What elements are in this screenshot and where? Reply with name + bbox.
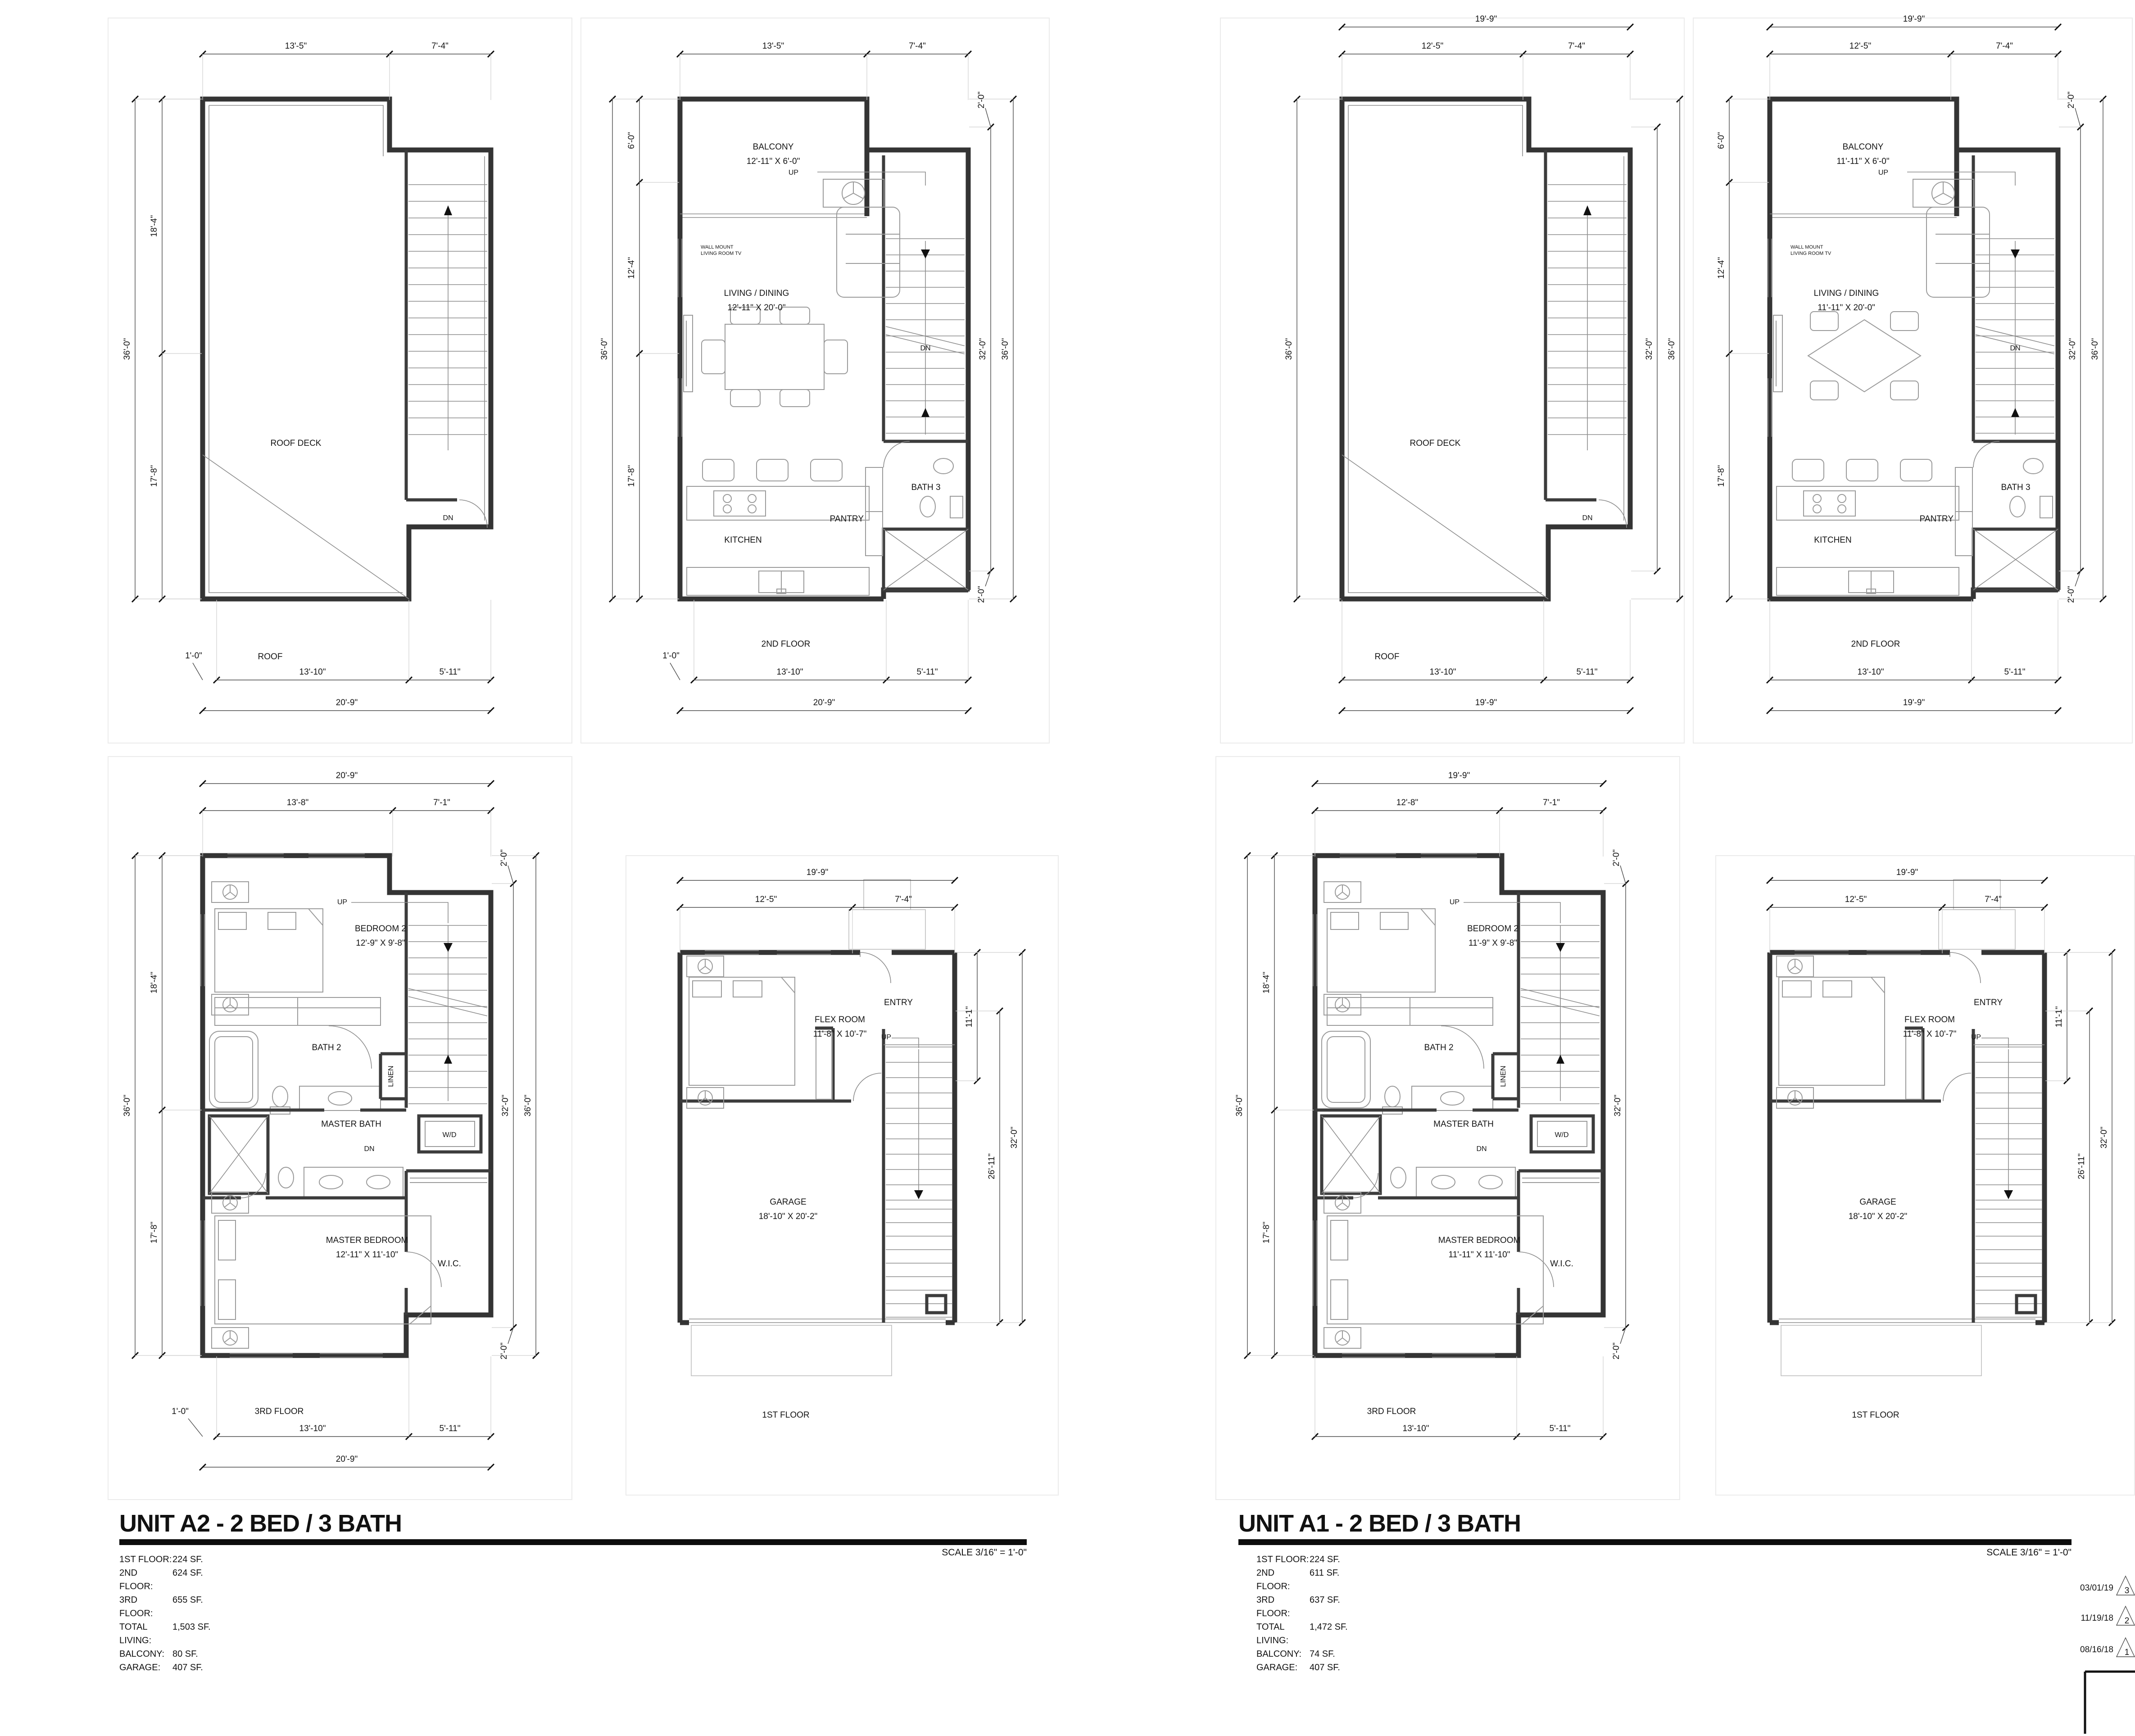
- dim-label: 17'-8": [1262, 1222, 1271, 1243]
- area-label: 1ST FLOOR:: [119, 1553, 172, 1566]
- area-label: TOTAL LIVING:: [1256, 1620, 1310, 1647]
- stair-direction-label: DN: [1582, 514, 1592, 522]
- floor-plan-3rd-a1: [1313, 854, 1603, 1357]
- room-dims-label: 12'-11" X 11'-10": [336, 1250, 398, 1260]
- unit-a1-title-block: UNIT A1 - 2 BED / 3 BATH: [1238, 1509, 1521, 1537]
- dim-label: 12'-8": [1396, 798, 1418, 807]
- dim-label: 7'-4": [1996, 41, 2013, 51]
- dim-label: 20'-9": [813, 698, 835, 707]
- dim-label: 12'-5": [755, 895, 777, 904]
- dim-label: 13'-10": [299, 1424, 326, 1433]
- area-row: 1ST FLOOR:224 SF.: [1256, 1553, 1348, 1566]
- floor-label: 3RD FLOOR: [255, 1407, 304, 1416]
- room-label: BATH 2: [1424, 1043, 1453, 1052]
- dim-label: 36'-0": [122, 338, 132, 360]
- dim-label: 19'-9": [1475, 698, 1497, 707]
- floor-label: 1ST FLOOR: [762, 1410, 809, 1420]
- title-block-border: [2085, 1672, 2135, 1734]
- room-label: LIVING / DINING: [724, 289, 789, 298]
- room-dims-label: 11'-9" X 9'-8": [1469, 938, 1517, 948]
- area-value: 407 SF.: [172, 1661, 211, 1674]
- room-dims-label: 12'-9" X 9'-8": [356, 938, 405, 948]
- dim-label: 18'-4": [150, 215, 159, 237]
- revision-block: 03/01/19 3 11/19/18 2 08/16/18 1: [2080, 1576, 2135, 1734]
- area-value: 407 SF.: [1310, 1661, 1348, 1674]
- area-row: GARAGE:407 SF.: [1256, 1661, 1348, 1674]
- room-label: KITCHEN: [1814, 535, 1851, 545]
- room-label: BALCONY: [1843, 142, 1884, 152]
- room-label: PANTRY: [1920, 514, 1954, 524]
- title-underline: [119, 1539, 1027, 1545]
- room-label: BEDROOM 2: [1467, 924, 1519, 934]
- dim-label: 5'-11": [1577, 667, 1598, 677]
- area-value: 80 SF.: [172, 1647, 211, 1661]
- area-row: 2ND FLOOR:611 SF.: [1256, 1566, 1348, 1593]
- room-label: ENTRY: [884, 998, 913, 1007]
- revision-number: 1: [2125, 1648, 2130, 1657]
- unit-title: UNIT A2 - 2 BED / 3 BATH: [119, 1509, 402, 1537]
- floor-label: ROOF: [258, 652, 283, 662]
- panel-a1-third: 19'-9" 12'-8" 7'-1" 36'-0" 18'-4" 17'-8"…: [1235, 771, 1623, 1433]
- tv-note: LIVING ROOM TV: [1790, 251, 1831, 256]
- room-label: W/D: [1555, 1131, 1568, 1139]
- room-dims-label: 11'-8" X 10'-7": [813, 1029, 867, 1039]
- dim-label: 1'-0": [185, 651, 202, 661]
- dim-label: 12'-4": [1717, 257, 1726, 279]
- dim-label: 1'-0": [172, 1407, 189, 1416]
- dim-label: 7'-4": [431, 41, 449, 51]
- dim-label: 2'-0": [977, 91, 986, 109]
- room-label: PANTRY: [830, 514, 864, 524]
- stair-direction-label: UP: [1971, 1033, 1981, 1041]
- room-dims-label: 11'-11" X 6'-0": [1836, 157, 1889, 166]
- panel-a2-second: 13'-5" 7'-4" 36'-0" 6'-0" 12'-4" 17'-8" …: [600, 41, 1010, 707]
- dim-label: 20'-9": [336, 698, 358, 707]
- dim-label: 13'-5": [285, 41, 307, 51]
- dim-label: 1'-0": [662, 651, 680, 661]
- room-label: LINEN: [1500, 1065, 1507, 1087]
- dim-label: 2'-0": [977, 586, 986, 603]
- dim-label: 5'-11": [2004, 667, 2026, 677]
- dining-set-a1: [1808, 312, 1921, 400]
- dim-label: 2'-0": [1612, 1342, 1621, 1360]
- panel-a2-roof: 13'-5" 7'-4" 36'-0" 18'-4" 17'-8" ROOF D…: [122, 41, 461, 707]
- dim-label: 32'-0": [978, 338, 988, 360]
- area-label: TOTAL LIVING:: [119, 1620, 172, 1647]
- area-row: TOTAL LIVING:1,503 SF.: [119, 1620, 211, 1647]
- area-label: 3RD FLOOR:: [1256, 1593, 1310, 1620]
- stair-direction-label: DN: [2010, 344, 2020, 352]
- area-row: GARAGE:407 SF.: [119, 1661, 211, 1674]
- revision-number: 2: [2125, 1616, 2130, 1626]
- room-label: BALCONY: [753, 142, 794, 152]
- dim-label: 19'-9": [1903, 14, 1925, 24]
- dim-label: 7'-1": [433, 798, 450, 807]
- unit-a2-title-block: UNIT A2 - 2 BED / 3 BATH: [119, 1509, 402, 1537]
- area-value: 74 SF.: [1310, 1647, 1348, 1661]
- title-underline: [1238, 1539, 2072, 1545]
- dim-label: 26'-11": [2077, 1153, 2086, 1179]
- area-value: 611 SF.: [1310, 1566, 1348, 1593]
- dim-label: 13'-10": [777, 667, 803, 677]
- room-label: GARAGE: [1859, 1197, 1896, 1207]
- dim-label: 12'-5": [1845, 895, 1867, 904]
- room-label: MASTER BEDROOM: [1438, 1236, 1521, 1245]
- area-value: 224 SF.: [172, 1553, 211, 1566]
- dim-label: 19'-9": [807, 868, 828, 877]
- dim-label: 5'-11": [917, 667, 938, 677]
- floor-plan-3rd-a2: [201, 854, 491, 1357]
- tv-note: LIVING ROOM TV: [701, 251, 742, 256]
- dim-label: 2'-0": [1612, 849, 1621, 866]
- area-label: 3RD FLOOR:: [119, 1593, 172, 1620]
- stair-direction-label: DN: [920, 344, 930, 352]
- dim-label: 12'-5": [1422, 41, 1443, 51]
- area-label: 1ST FLOOR:: [1256, 1553, 1310, 1566]
- area-label: 2ND FLOOR:: [1256, 1566, 1310, 1593]
- dim-label: 36'-0": [600, 338, 609, 360]
- area-row: BALCONY:80 SF.: [119, 1647, 211, 1661]
- room-label: FLEX ROOM: [1904, 1015, 1955, 1024]
- dim-label: 36'-0": [1667, 338, 1677, 360]
- room-dims-label: 12'-11" X 6'-0": [747, 157, 800, 166]
- area-value: 655 SF.: [172, 1593, 211, 1620]
- dim-label: 2'-0": [499, 1342, 509, 1360]
- room-label: BATH 3: [911, 483, 940, 492]
- dim-label: 2'-0": [2067, 91, 2076, 109]
- dim-label: 5'-11": [440, 1424, 461, 1433]
- floor-label: ROOF: [1375, 652, 1400, 662]
- dim-label: 19'-9": [1448, 771, 1470, 780]
- dim-label: 13'-10": [1430, 667, 1456, 677]
- dim-label: 20'-9": [336, 771, 358, 780]
- area-label: GARAGE:: [119, 1661, 172, 1674]
- dim-label: 5'-11": [1550, 1424, 1571, 1433]
- floor-label: 1ST FLOOR: [1852, 1410, 1899, 1420]
- room-dims-label: 11'-11" X 11'-10": [1449, 1250, 1510, 1260]
- dim-label: 7'-4": [1568, 41, 1585, 51]
- floor-label: 3RD FLOOR: [1367, 1407, 1416, 1416]
- dim-label: 19'-9": [1475, 14, 1497, 24]
- dim-label: 19'-9": [1896, 868, 1918, 877]
- stair-direction-label: UP: [337, 898, 347, 906]
- dim-label: 13'-8": [287, 798, 308, 807]
- room-label: MASTER BATH: [1433, 1120, 1494, 1129]
- tv-note: WALL MOUNT: [1790, 245, 1823, 250]
- stair-direction-label: UP: [1878, 169, 1888, 177]
- room-label: W.I.C.: [1550, 1259, 1573, 1269]
- area-row: 2ND FLOOR:624 SF.: [119, 1566, 211, 1593]
- room-label: GARAGE: [770, 1197, 806, 1207]
- dim-label: 11'-1": [2054, 1006, 2064, 1028]
- room-label: FLEX ROOM: [815, 1015, 865, 1024]
- area-label: 2ND FLOOR:: [119, 1566, 172, 1593]
- dining-set-a2: [702, 307, 848, 407]
- dim-label: 5'-11": [440, 667, 461, 677]
- dim-label: 13'-10": [1858, 667, 1884, 677]
- dim-label: 17'-8": [1717, 465, 1726, 487]
- room-dims-label: 12'-11" X 20'-0": [727, 303, 785, 313]
- room-dims-label: 18'-10" X 20'-2": [1849, 1212, 1908, 1221]
- area-value: 1,503 SF.: [172, 1620, 211, 1647]
- dim-label: 26'-11": [987, 1153, 997, 1179]
- dim-label: 36'-0": [1235, 1095, 1244, 1116]
- stair-direction-label: DN: [364, 1145, 374, 1153]
- room-dims-label: 11'-8" X 10'-7": [1903, 1029, 1957, 1039]
- dim-label: 12'-5": [1849, 41, 1871, 51]
- dim-label: 17'-8": [150, 465, 159, 487]
- room-label: LIVING / DINING: [1814, 289, 1879, 298]
- dim-label: 32'-0": [1645, 338, 1654, 360]
- room-label: KITCHEN: [724, 535, 762, 545]
- room-label: MASTER BATH: [321, 1120, 381, 1129]
- area-row: 3RD FLOOR:637 SF.: [1256, 1593, 1348, 1620]
- area-table-a2: 1ST FLOOR:224 SF. 2ND FLOOR:624 SF. 3RD …: [119, 1553, 211, 1674]
- room-label: MASTER BEDROOM: [326, 1236, 408, 1245]
- area-row: 3RD FLOOR:655 SF.: [119, 1593, 211, 1620]
- dim-label: 32'-0": [2099, 1127, 2109, 1148]
- dim-label: 11'-1": [965, 1006, 974, 1028]
- scale-note: SCALE 3/16" = 1'-0": [721, 1547, 1027, 1558]
- unit-title: UNIT A1 - 2 BED / 3 BATH: [1238, 1509, 1521, 1537]
- dim-label: 17'-8": [150, 1222, 159, 1243]
- dim-label: 17'-8": [627, 465, 636, 487]
- dim-label: 12'-4": [627, 257, 636, 279]
- room-label: ENTRY: [1974, 998, 2003, 1007]
- floor-plan-roof-a2: [203, 99, 491, 599]
- dim-label: 13'-10": [1403, 1424, 1429, 1433]
- dim-label: 18'-4": [150, 972, 159, 993]
- area-value: 1,472 SF.: [1310, 1620, 1348, 1647]
- dim-label: 7'-4": [895, 895, 912, 904]
- room-label: ROOF DECK: [1410, 439, 1461, 448]
- dim-label: 20'-9": [336, 1455, 358, 1464]
- stair-direction-label: DN: [1476, 1145, 1487, 1153]
- area-label: BALCONY:: [1256, 1647, 1310, 1661]
- area-value: 224 SF.: [1310, 1553, 1348, 1566]
- revision-date: 08/16/18: [2080, 1645, 2113, 1654]
- dim-label: 36'-0": [523, 1095, 533, 1116]
- dim-label: 7'-4": [1985, 895, 2002, 904]
- area-label: GARAGE:: [1256, 1661, 1310, 1674]
- dim-label: 19'-9": [1903, 698, 1925, 707]
- dim-label: 36'-0": [2090, 338, 2100, 360]
- room-label: LINEN: [387, 1065, 395, 1087]
- area-row: 1ST FLOOR:224 SF.: [119, 1553, 211, 1566]
- panel-a1-second: 19'-9" 12'-5" 7'-4" 6'-0" 12'-4" 17'-8" …: [1717, 14, 2100, 707]
- stair-direction-label: UP: [789, 169, 798, 177]
- revision-number: 3: [2125, 1586, 2130, 1595]
- room-label: BEDROOM 2: [355, 924, 406, 934]
- area-value: 637 SF.: [1310, 1593, 1348, 1620]
- floor-label: 2ND FLOOR: [762, 639, 811, 649]
- dim-label: 36'-0": [1284, 338, 1294, 360]
- dim-label: 32'-0": [2068, 338, 2077, 360]
- floor-label: 2ND FLOOR: [1851, 639, 1900, 649]
- dim-label: 7'-4": [909, 41, 926, 51]
- room-label: W.I.C.: [438, 1259, 461, 1269]
- room-label: BATH 3: [2001, 483, 2030, 492]
- dim-label: 6'-0": [1717, 132, 1726, 149]
- area-row: TOTAL LIVING:1,472 SF.: [1256, 1620, 1348, 1647]
- scale-note: SCALE 3/16" = 1'-0": [1765, 1547, 2072, 1558]
- dim-label: 36'-0": [122, 1095, 132, 1116]
- area-table-a1: 1ST FLOOR:224 SF. 2ND FLOOR:611 SF. 3RD …: [1256, 1553, 1348, 1674]
- tv-note: WALL MOUNT: [701, 245, 734, 250]
- room-label: W/D: [442, 1131, 456, 1139]
- room-dims-label: 11'-11" X 20'-0": [1818, 303, 1875, 313]
- stair-direction-label: UP: [881, 1033, 891, 1041]
- room-label: ROOF DECK: [271, 439, 322, 448]
- stair-direction-label: UP: [1450, 898, 1460, 906]
- floor-plan-1st-a1: [1770, 879, 2044, 1376]
- dim-label: 2'-0": [499, 849, 509, 866]
- area-label: BALCONY:: [119, 1647, 172, 1661]
- stair-direction-label: DN: [443, 514, 453, 522]
- dim-label: 13'-5": [762, 41, 784, 51]
- room-dims-label: 18'-10" X 20'-2": [759, 1212, 818, 1221]
- dim-label: 32'-0": [1613, 1095, 1623, 1116]
- dim-label: 32'-0": [1010, 1127, 1019, 1148]
- dim-label: 36'-0": [1001, 338, 1010, 360]
- room-label: BATH 2: [312, 1043, 341, 1052]
- floor-plan-sheet: 13'-5" 7'-4" 36'-0" 18'-4" 17'-8" ROOF D…: [0, 0, 2135, 1734]
- dim-label: 32'-0": [501, 1095, 510, 1116]
- area-row: BALCONY:74 SF.: [1256, 1647, 1348, 1661]
- dim-label: 6'-0": [627, 132, 636, 149]
- revision-date: 11/19/18: [2081, 1614, 2113, 1623]
- dim-label: 7'-1": [1543, 798, 1560, 807]
- dim-label: 13'-10": [299, 667, 326, 677]
- dim-label: 2'-0": [2067, 586, 2076, 603]
- area-value: 624 SF.: [172, 1566, 211, 1593]
- floor-plan-roof-a1: [1342, 99, 1630, 599]
- floor-plan-1st-a2: [680, 879, 955, 1376]
- revision-date: 03/01/19: [2080, 1583, 2113, 1593]
- dim-label: 18'-4": [1262, 972, 1271, 993]
